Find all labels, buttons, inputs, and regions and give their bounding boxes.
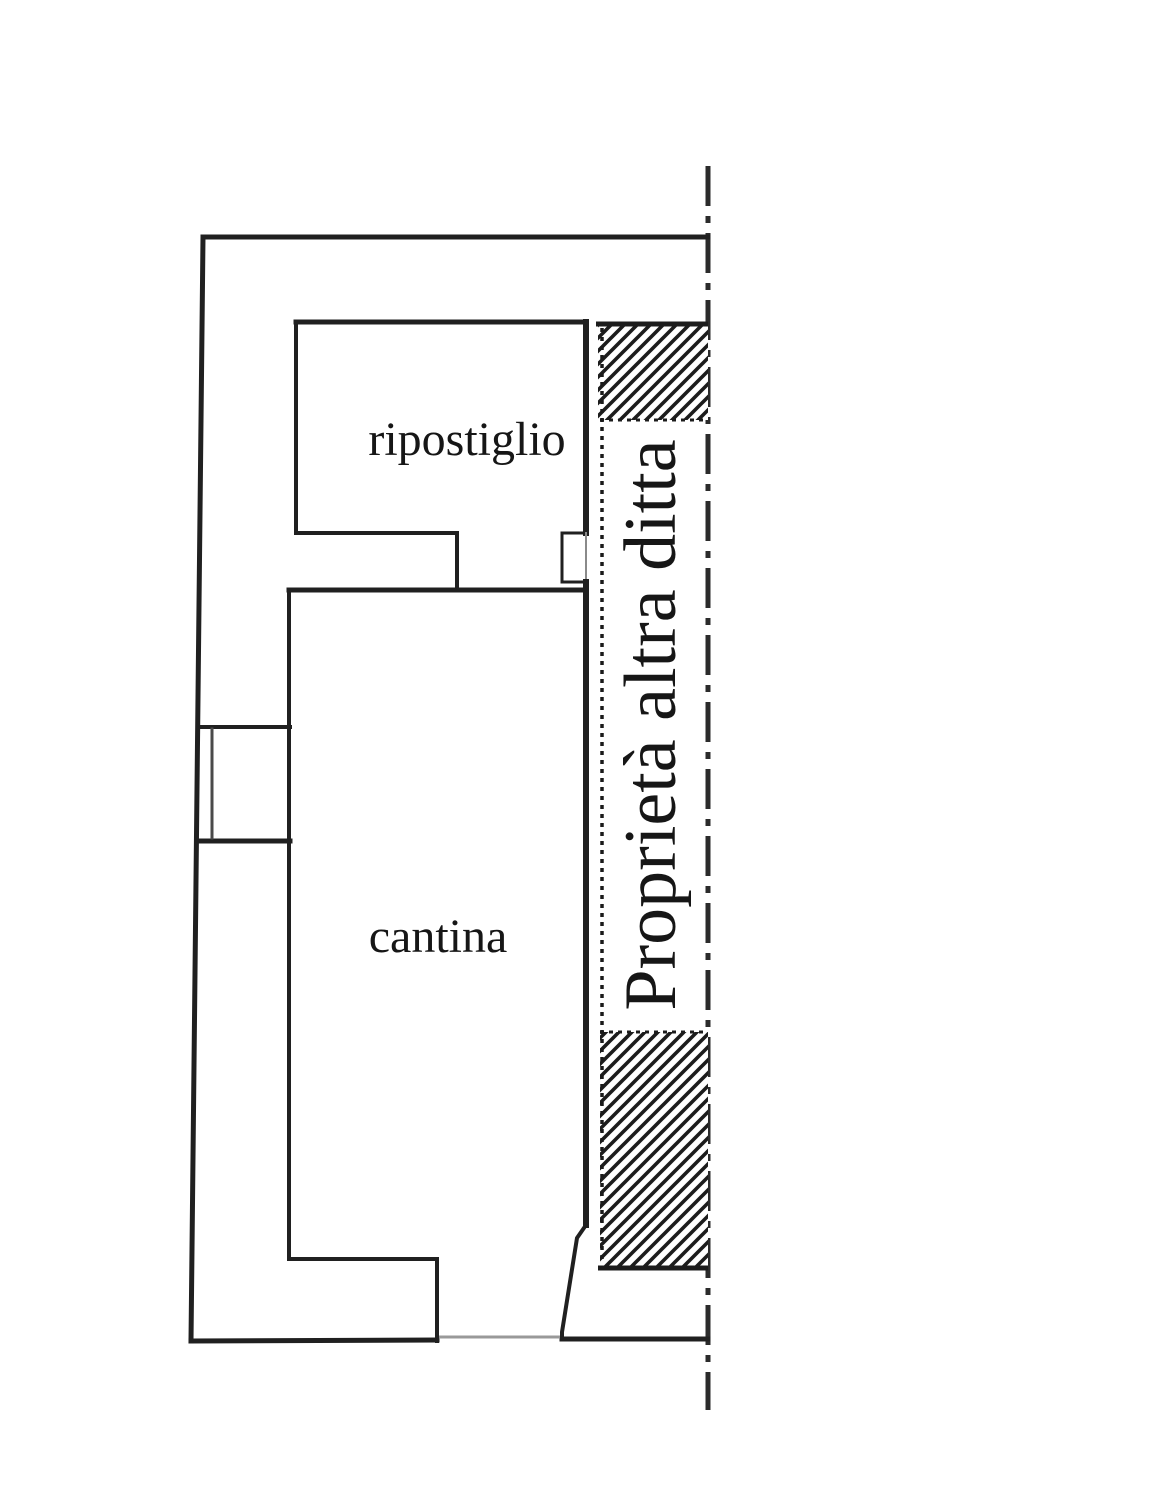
outer-wall-bottom-left bbox=[191, 1340, 437, 1341]
hatched-area-top bbox=[598, 323, 708, 420]
paper-background bbox=[0, 0, 1164, 1500]
label-property-other-company: Proprietà altra ditta bbox=[610, 439, 692, 1010]
floor-plan-drawing: ripostiglio cantina Proprietà altra ditt… bbox=[0, 0, 1164, 1500]
hatched-area-bottom bbox=[600, 1032, 708, 1268]
scanned-floor-plan-page: ripostiglio cantina Proprietà altra ditt… bbox=[0, 0, 1164, 1500]
label-ripostiglio: ripostiglio bbox=[368, 413, 565, 466]
label-cantina: cantina bbox=[369, 910, 508, 963]
